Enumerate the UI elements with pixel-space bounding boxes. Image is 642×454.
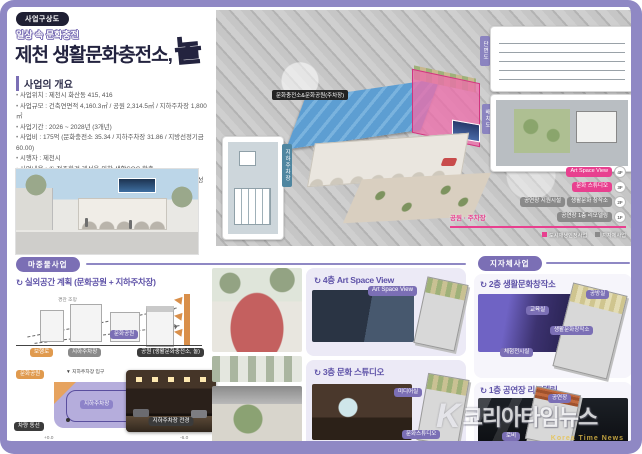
- axon-roof-shape: [425, 278, 467, 301]
- panel-4f-heading: 4층 Art Space View: [314, 274, 394, 286]
- overview-item: 사업규모 : 건축연면적 4,160.3㎡ / 공원 2,314.5㎡ / 지하…: [16, 102, 212, 123]
- parking-entry-label: ▼ 지하주차장 입구: [66, 368, 104, 375]
- car-shape: [133, 409, 149, 417]
- view-note: 경관 조망: [58, 296, 77, 303]
- view-cone-shape: [170, 327, 183, 337]
- title-accent: 놀: [174, 37, 203, 68]
- workshop-pill: 공방실: [586, 290, 609, 299]
- building-label: 문화충전소&문화공원(주차장): [272, 90, 348, 100]
- level-label-bottom: -6.0: [180, 436, 188, 441]
- circular-arrow-icon: [16, 278, 23, 289]
- outdoor-plan-heading-text: 실외공간 계획 (문화공원 + 지하주차장): [25, 277, 156, 287]
- parking-plan-panel: [222, 136, 284, 240]
- section-drawing: [499, 35, 625, 83]
- lobby-pill: 로비: [502, 432, 520, 441]
- ceiling-lights-shape: [126, 377, 216, 382]
- street-render-image: [15, 168, 199, 255]
- path-pill: 보행로: [30, 348, 53, 357]
- legend-pink-label: 도시재생인정사업: [549, 233, 587, 239]
- exhibit-room-pill: 체험전시실: [500, 348, 533, 357]
- section-sketch-diagram: 경관 조망 문화공원 보행로 지하주차장 공원 (생활문화충전소, 놀): [14, 288, 204, 358]
- view-cone-shape: [170, 295, 183, 305]
- floor-row-1f: 공연장 1층 리모델링 1F: [557, 211, 626, 223]
- parking-plan-drawing: [228, 142, 278, 234]
- circulation-pill: 차량 동선: [14, 422, 44, 431]
- car-shape: [191, 410, 207, 418]
- overview-item: 사업위치 : 제천시 화산동 415, 416: [16, 91, 212, 102]
- overview-item: 시행자 : 제천시: [16, 154, 212, 165]
- art-space-pill: Art Space View: [368, 286, 417, 296]
- site-plan-panel: [490, 94, 634, 172]
- pink-swatch: [542, 232, 547, 237]
- person-shape: [129, 220, 132, 229]
- parking-pill: 지하주차장: [68, 348, 101, 357]
- legend: 도시재생인정사업 지자체사업: [542, 232, 626, 239]
- panel-2f: 2층 생활문화창작소 공방실 교육실 생활문화창작소 체험전시실: [474, 274, 632, 378]
- building-outline: [70, 304, 102, 342]
- ground-line: [16, 345, 202, 346]
- floor4-label: Art Space View: [566, 167, 612, 176]
- parking-pill: 지하주차장: [80, 400, 113, 409]
- parking-plan-tab: 지하주차장: [282, 144, 292, 187]
- panel-4f: 4층 Art Space View Art Space View: [306, 268, 466, 356]
- main-facility-pill: 공원 (생활문화충전소, 놀): [137, 348, 204, 357]
- panel-1f: 1층 공연장 리모델링 공연장 로비: [474, 382, 632, 448]
- route-node: [66, 418, 70, 422]
- floor1-label: 공연장 1층 리모델링: [557, 212, 612, 221]
- aerial-site-view: 문화충전소&문화공원(주차장) 지하주차장 단면도 배치도 Art Space …: [216, 10, 636, 246]
- circular-arrow-icon: [314, 368, 321, 379]
- legend-item-pink: 도시재생인정사업: [542, 232, 587, 239]
- view-cone-shape: [170, 311, 183, 321]
- studio-pill: 문화스튜디오: [402, 430, 440, 439]
- panel-2f-heading: 2층 생활문화창작소: [480, 278, 555, 290]
- park-path-photo: [212, 356, 302, 382]
- panel-4f-heading-text: 4층 Art Space View: [323, 275, 394, 285]
- municipal-project-badge: 지자체사업: [478, 256, 542, 271]
- panel-3f: 3층 문화 스튜디오 미디어실 문화스튜디오: [306, 360, 466, 448]
- park-track-photo: [212, 268, 302, 352]
- art-space-interior-photo: [312, 290, 414, 342]
- legend-item-gray: 지자체사업: [595, 232, 626, 239]
- floor-axon-4f: [413, 276, 468, 351]
- garage-photo-pill: 지하주차장 전경: [149, 417, 194, 426]
- tree-shape: [169, 186, 195, 208]
- section-divider: [86, 263, 466, 265]
- floor3-label: 문화 스튜디오: [572, 182, 612, 191]
- floor3-tag: 3F: [614, 181, 626, 193]
- page-title: 제천 생활문화충전소,놀: [15, 38, 202, 67]
- floor-row-3f: 문화 스튜디오 3F: [572, 181, 626, 193]
- floor2-tag: 2F: [614, 196, 626, 208]
- plan-detail-shape: [239, 151, 256, 166]
- overview-heading: 사업의 개요: [16, 76, 73, 91]
- axon-roof-shape: [427, 374, 469, 395]
- culture-park-pill: 문화공원: [16, 370, 44, 379]
- overview-item: 사업기간 : 2026 ~ 2028년 (3개년): [16, 123, 212, 134]
- person-shape: [85, 218, 88, 227]
- parking-stall-grid: [234, 188, 271, 225]
- legend-gray-label: 지자체사업: [602, 233, 626, 239]
- concept-plan-badge: 사업구상도: [16, 12, 69, 26]
- floor2-label-b: 생활문화 창작소: [567, 197, 612, 206]
- divider-line: [450, 226, 626, 228]
- section-divider: [546, 262, 630, 264]
- theater-pill: 공연장: [548, 394, 571, 403]
- outdoor-plan-heading: 실외공간 계획 (문화공원 + 지하주차장): [16, 276, 156, 288]
- building-outline: [40, 310, 64, 342]
- gray-swatch: [595, 232, 600, 237]
- overview-item: 사업비 : 175억 (문화충전소 35.34 / 지하주차장 31.86 / …: [16, 133, 212, 154]
- panel-3f-heading: 3층 문화 스튜디오: [314, 366, 384, 378]
- floor4-tag: 4F: [614, 166, 626, 178]
- level-label-top: +0.0: [44, 436, 53, 441]
- screen-tower-shape: [184, 294, 190, 346]
- circular-arrow-icon: [480, 280, 487, 291]
- parking-plan-diagram: 문화공원 ▼ 지하주차장 입구 지하주차장 차량 동선 +0.0 -6.0 지하…: [14, 366, 206, 446]
- courtyard-aerial-photo: [212, 386, 302, 446]
- title-text: 제천 생활문화충전소,: [15, 45, 172, 66]
- floor-row-2f: 공연장 지원시설 생활문화 창작소 2F: [520, 196, 626, 208]
- parking-garage-photo: 지하주차장 전경: [126, 370, 216, 432]
- arched-facade-shape: [78, 198, 167, 231]
- site-plan-drawing: [496, 100, 628, 166]
- park-area-shape: [514, 109, 569, 153]
- section-drawing-tab: 단면도: [480, 36, 490, 66]
- floor-row-4f: Art Space View 4F: [566, 166, 626, 178]
- culture-park-pill: 문화공원: [110, 330, 138, 339]
- presentation-board: 사업구상도 일상 속 문화충전 제천 생활문화충전소,놀 사업의 개요 사업위치…: [0, 0, 642, 454]
- circular-arrow-icon: [480, 386, 487, 397]
- panel-3f-heading-text: 3층 문화 스튜디오: [323, 367, 384, 377]
- billboard-shape: [118, 178, 156, 194]
- class-room-pill: 교육실: [526, 306, 549, 315]
- creation-space-pill: 생활문화창작소: [550, 326, 593, 335]
- section-drawing-panel: [490, 26, 634, 92]
- building-footprint-shape: [576, 111, 618, 143]
- circular-arrow-icon: [314, 276, 321, 287]
- floor1-tag: 1F: [614, 211, 626, 223]
- axon-roof-shape: [569, 284, 626, 315]
- media-room-pill: 미디어실: [394, 388, 422, 397]
- priming-project-badge: 마중물사업: [16, 257, 80, 272]
- floor2-label-a: 공연장 지원시설: [520, 197, 565, 206]
- panel-2f-heading-text: 2층 생활문화창작소: [489, 279, 556, 289]
- park-parking-label: 공원 · 주차장: [450, 212, 486, 222]
